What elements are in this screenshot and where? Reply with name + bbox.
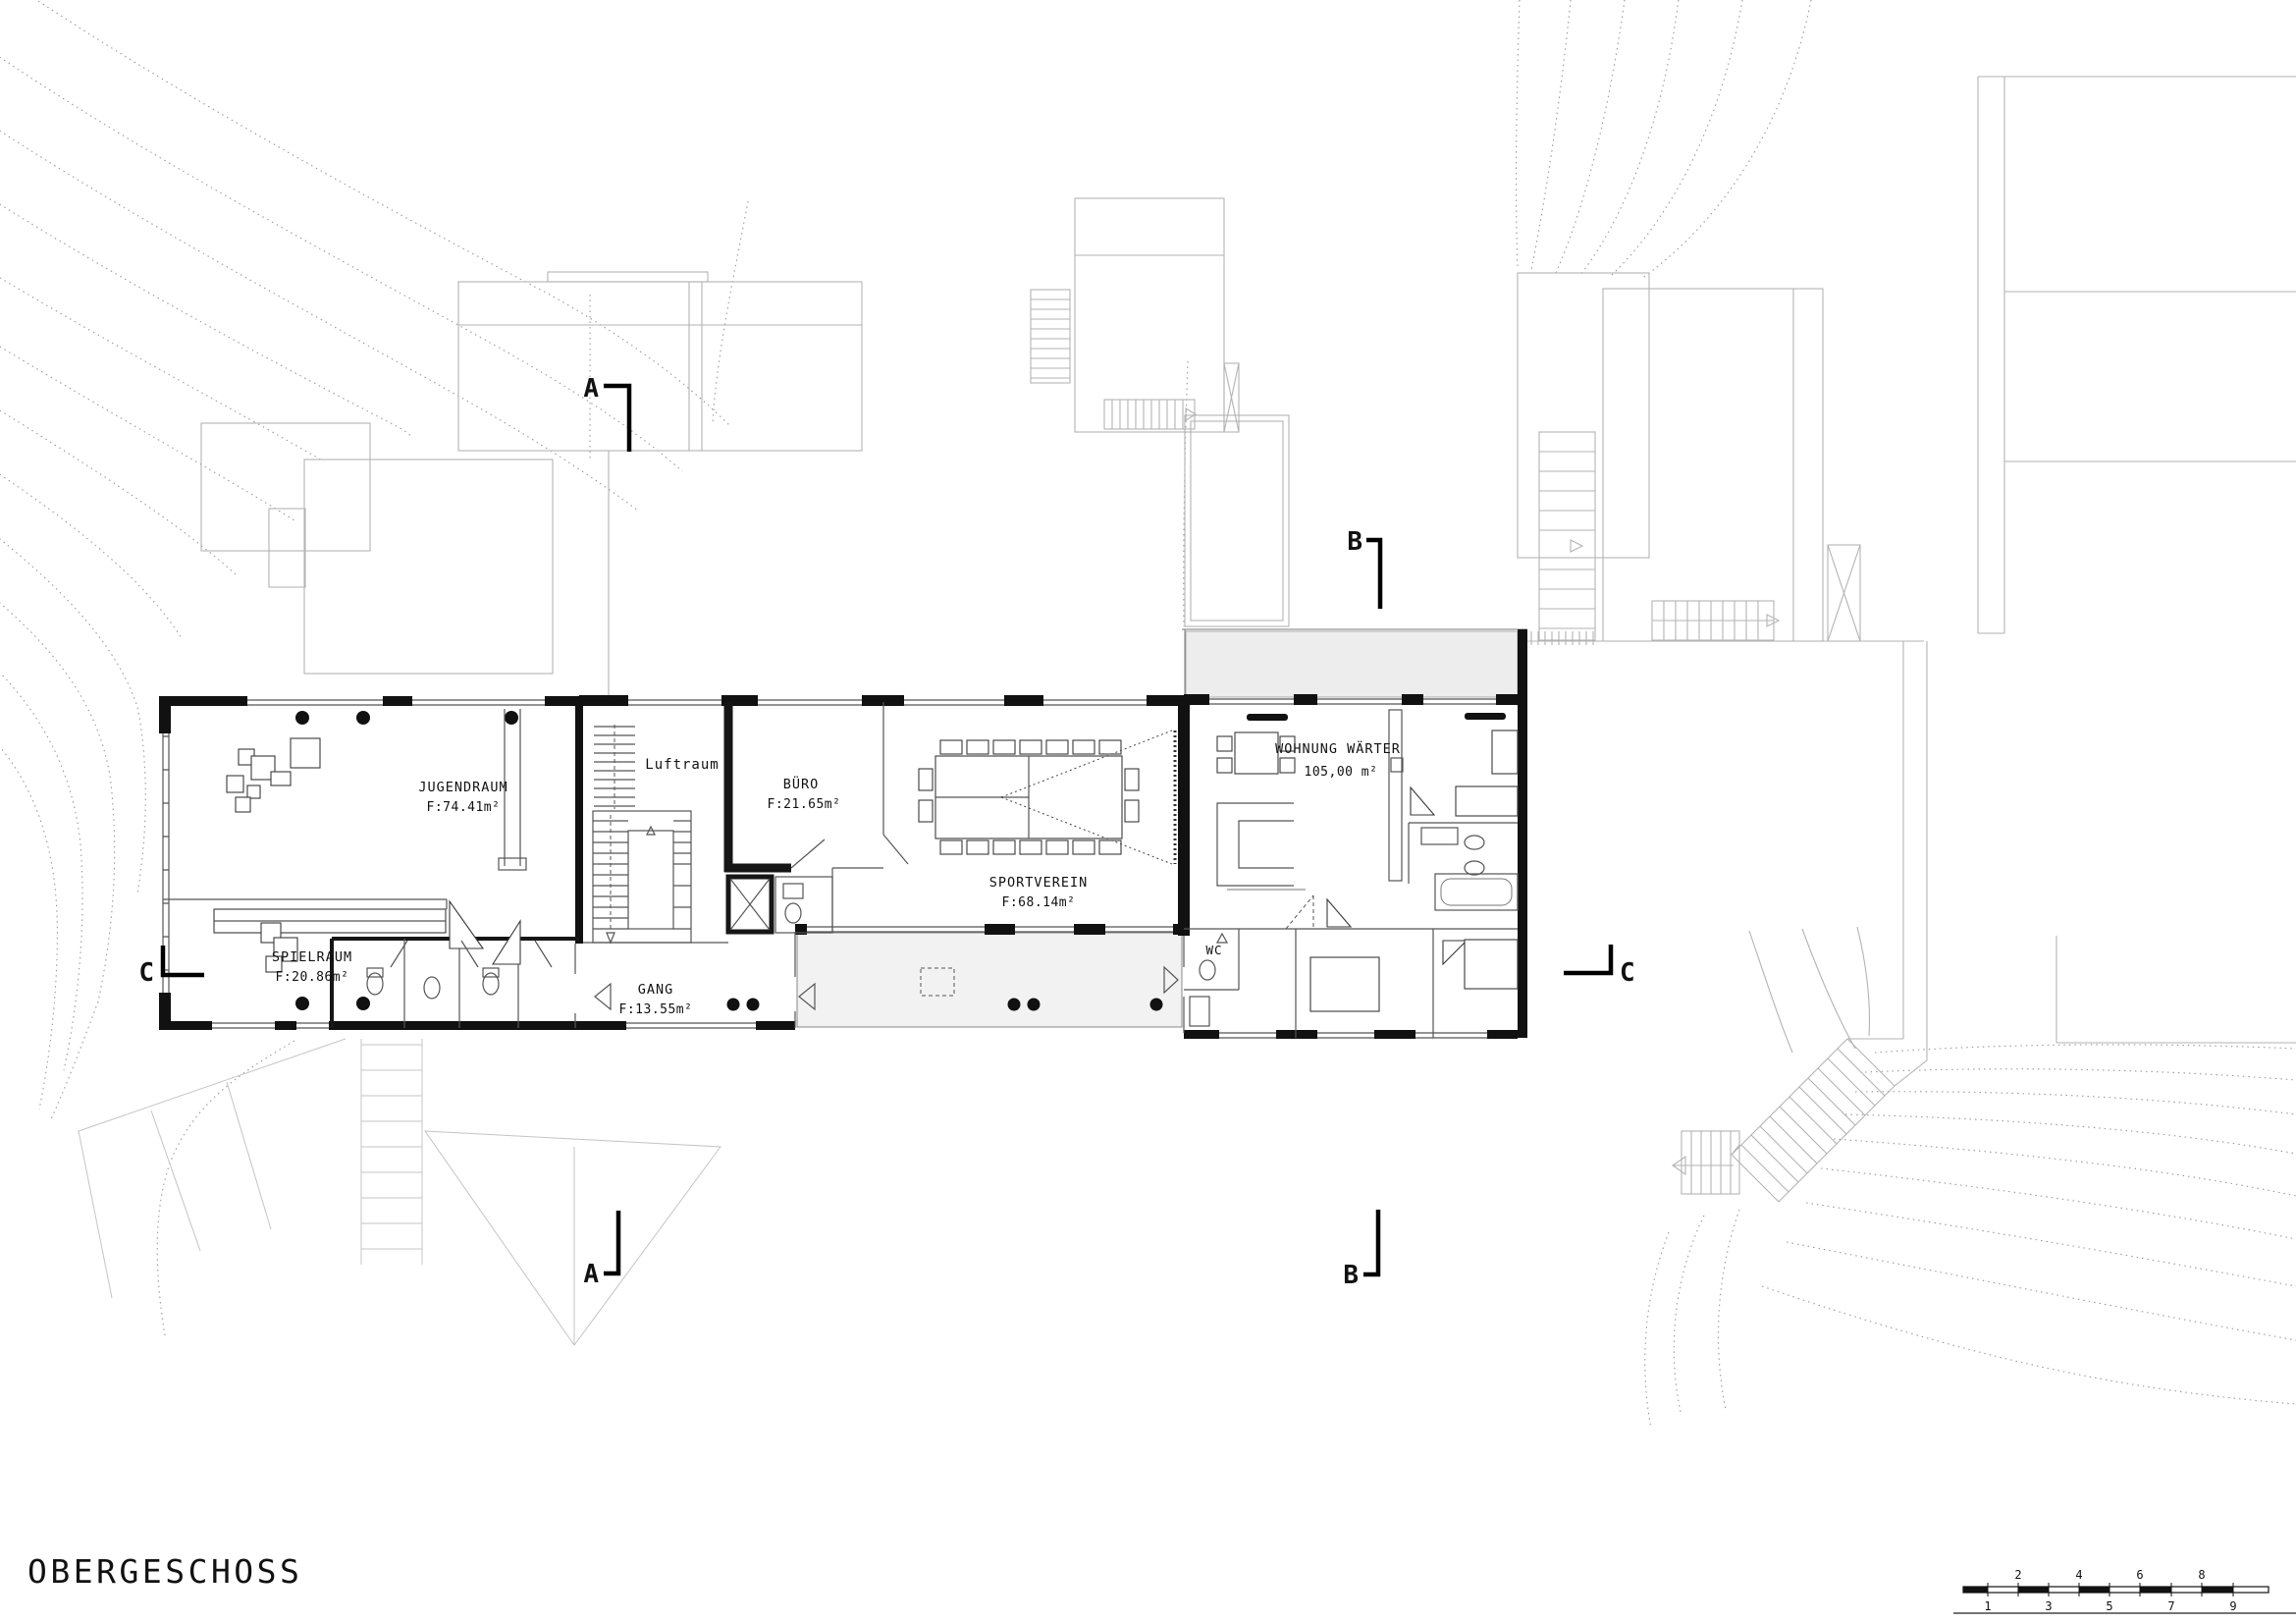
jugendraum-furniture-shape xyxy=(236,797,250,812)
wall-piers-shape xyxy=(329,1021,579,1030)
jugendraum-furniture-shape xyxy=(291,738,320,768)
columns-shape xyxy=(1150,999,1163,1011)
gang-door-arrow xyxy=(595,984,611,1009)
doors-shape xyxy=(1217,934,1227,943)
conference-table-shape xyxy=(1046,740,1068,754)
contour-lines-bottomright-shape xyxy=(1875,1045,2296,1053)
contour-lines-bottomleft xyxy=(51,1001,294,1335)
facade-windows-shape xyxy=(1184,699,1518,704)
wohnung-furniture-shape xyxy=(1492,730,1518,774)
section-markers-shape xyxy=(1564,945,1611,973)
wall-piers-shape xyxy=(1184,1030,1219,1039)
exterior-stair-southeast-shape xyxy=(1732,1145,1739,1155)
exterior-ladder-path xyxy=(361,1039,422,1265)
contour-lines-topleft-shape xyxy=(1184,361,1188,626)
wall-piers-shape xyxy=(383,696,412,706)
jugendraum-furniture-shape xyxy=(271,772,291,785)
contour-lines-topleft-shape xyxy=(0,54,682,471)
wohnung-furniture-shape xyxy=(1190,997,1209,1026)
scale-label-4: 4 xyxy=(2075,1568,2082,1582)
wohnung-furniture-shape xyxy=(1310,957,1379,1011)
columns-shape xyxy=(505,711,518,725)
columns-shape xyxy=(747,999,760,1011)
contour-lines-topright-shape xyxy=(1531,0,1571,270)
wall-piers-shape xyxy=(275,1021,296,1030)
contour-lines-bottomright-shape xyxy=(1834,1139,2296,1196)
plan-drawing: A A B B C C JUGENDRAUM F:74.41m² SPIELRA… xyxy=(0,0,2296,1623)
conference-table-shape xyxy=(967,740,988,754)
facade-windows-shape xyxy=(1531,631,1593,645)
facade-windows-shape xyxy=(163,702,169,1028)
scale-bar-shape xyxy=(1963,1587,1988,1593)
drawing-title: OBERGESCHOSS xyxy=(27,1552,302,1591)
adjacent-buildings-northeast-shape xyxy=(1031,290,1070,383)
wc-fixtures xyxy=(367,968,499,999)
scale-label-7: 7 xyxy=(2167,1599,2174,1613)
columns-shape xyxy=(727,999,740,1011)
room-area-wohnung: 105,00 m² xyxy=(1305,765,1378,780)
contour-lines-topright xyxy=(1517,0,1811,279)
wall-piers-shape xyxy=(159,1021,212,1030)
hip-roof-building xyxy=(425,1131,721,1345)
room-label-buero: BÜRO xyxy=(783,775,820,792)
jugendraum-furniture-shape xyxy=(227,776,243,792)
scale-bar-shape xyxy=(2079,1587,2109,1593)
scale-label-1: 1 xyxy=(1984,1599,1991,1613)
room-label-wc: WC xyxy=(1205,943,1222,957)
columns-shape xyxy=(295,997,309,1010)
scale-label-9: 9 xyxy=(2229,1599,2236,1613)
adjacent-buildings-east-shape xyxy=(1518,273,1649,558)
conference-table-shape xyxy=(1099,840,1121,854)
wall-piers-shape xyxy=(579,695,628,706)
wall-piers-shape xyxy=(1074,924,1105,935)
contour-lines-topleft-shape xyxy=(0,535,145,893)
contour-lines-topleft-shape xyxy=(0,407,236,574)
room-label-luftraum: Luftraum xyxy=(645,757,719,773)
contour-lines-topleft-shape xyxy=(0,668,82,1070)
scale-bar-shape xyxy=(2140,1587,2171,1593)
site-boundaries-shape xyxy=(151,1110,200,1251)
section-markers-shape xyxy=(604,1211,618,1273)
conference-table-shape xyxy=(1020,840,1041,854)
adjacent-buildings-east-shape xyxy=(1603,289,1823,641)
contour-lines-bottomright-shape xyxy=(1674,1216,1704,1412)
wohnung-furniture-shape xyxy=(1456,786,1518,816)
doors-shape xyxy=(1411,787,1434,815)
contour-lines-bottomright-shape xyxy=(1845,1114,2296,1154)
adjacent-buildings-east-shape xyxy=(1828,545,1860,641)
section-marker-c-left: C xyxy=(138,958,154,988)
columns-shape xyxy=(356,997,370,1010)
wall-piers-shape xyxy=(756,1021,795,1030)
contour-lines-bottomright xyxy=(1645,1045,2296,1429)
wall-piers-shape xyxy=(579,1021,626,1030)
conference-table-shape xyxy=(1125,800,1139,822)
scale-label-2: 2 xyxy=(2014,1568,2021,1582)
section-marker-a-top: A xyxy=(583,374,599,404)
room-label-jugendraum: JUGENDRAUM xyxy=(418,780,507,795)
contour-lines-topright-shape xyxy=(1641,0,1811,279)
contour-lines-topright-shape xyxy=(1517,0,1520,267)
interior-walls-shape xyxy=(783,884,803,898)
section-marker-a-bottom: A xyxy=(583,1260,599,1289)
conference-table-shape xyxy=(1073,840,1095,854)
doors-shape xyxy=(1327,899,1351,927)
main-stair-shape xyxy=(628,831,673,929)
scale-label-6: 6 xyxy=(2136,1568,2143,1582)
contour-lines-bottomright-shape xyxy=(1821,1168,2296,1239)
interior-walls-shape xyxy=(163,899,447,909)
conference-table-shape xyxy=(1046,840,1068,854)
facade-windows-shape xyxy=(1184,1033,1518,1038)
interior-walls-shape xyxy=(785,903,801,923)
stairhall-west-wall xyxy=(575,700,583,944)
wohnung-furniture-shape xyxy=(1441,879,1512,905)
wohnung-furniture-shape xyxy=(1247,714,1288,721)
adjacent-buildings-north-shape xyxy=(458,282,862,451)
wohnung-furniture-shape xyxy=(1217,758,1232,773)
adjacent-buildings-northeast-shape xyxy=(1104,400,1195,429)
interior-walls-shape xyxy=(1409,823,1518,884)
contour-lines-topleft-shape xyxy=(0,599,115,1001)
contour-lines-bottomright-shape xyxy=(1645,1232,1669,1429)
scale-label-5: 5 xyxy=(2106,1599,2112,1613)
contour-lines-bottomleft-shape xyxy=(51,1001,98,1119)
scale-bar: 1 2 3 4 5 6 7 8 9 xyxy=(1953,1568,2296,1613)
columns-shape xyxy=(356,711,370,725)
exterior-stair-southeast xyxy=(1673,927,1927,1202)
wohnung-furniture-shape xyxy=(1465,940,1518,989)
adjacent-buildings-northeast-shape xyxy=(1075,198,1224,432)
section-marker-b-top: B xyxy=(1347,527,1362,557)
exterior-ladder-path-shape xyxy=(361,1045,422,1249)
conference-table-shape xyxy=(1020,740,1041,754)
section-marker-b-bottom: B xyxy=(1343,1261,1359,1290)
hip-roof-building-shape xyxy=(425,1131,721,1345)
contour-lines-topright-shape xyxy=(1610,0,1742,277)
contour-lines-topright-shape xyxy=(1580,0,1679,275)
doors-shape xyxy=(450,901,483,948)
conference-table-shape xyxy=(1099,740,1121,754)
wall-piers-shape xyxy=(1496,694,1518,705)
wall-piers-shape xyxy=(1402,694,1423,705)
interior-walls-shape xyxy=(832,868,883,931)
adjacent-buildings-northeast-shape xyxy=(1191,421,1283,621)
conference-table-shape xyxy=(993,740,1015,754)
columns-shape xyxy=(1008,999,1021,1011)
scale-label-8: 8 xyxy=(2198,1568,2205,1582)
room-area-spielraum: F:20.86m² xyxy=(276,970,349,985)
wc-fixtures-shape xyxy=(367,973,383,995)
wall-piers-shape xyxy=(985,924,1015,935)
wohnung-furniture-shape xyxy=(1465,713,1506,720)
conference-table-shape xyxy=(940,740,962,754)
contour-lines-topleft-shape xyxy=(29,0,731,427)
scale-bar-shape xyxy=(2202,1587,2233,1593)
adjacent-buildings-east-shape xyxy=(1571,540,1582,552)
sportverein-east-wall xyxy=(1178,698,1190,936)
exterior-stair-southeast-shape xyxy=(1749,931,1792,1053)
section-markers-shape xyxy=(1366,540,1380,609)
doors-shape xyxy=(1286,895,1313,929)
interior-walls-shape xyxy=(883,835,908,864)
section-markers-shape xyxy=(1363,1210,1378,1274)
scale-label-3: 3 xyxy=(2045,1599,2052,1613)
adjacent-buildings-north-shape xyxy=(304,460,553,674)
contour-lines-topleft-shape xyxy=(0,471,182,638)
adjacent-buildings-east-shape xyxy=(1978,77,2296,633)
room-area-gang: F:13.55m² xyxy=(619,1002,693,1017)
contour-lines-topleft-shape xyxy=(0,201,412,437)
room-area-buero: F:21.65m² xyxy=(768,797,841,812)
conference-table-shape xyxy=(967,840,988,854)
interior-walls-shape xyxy=(1389,710,1402,881)
site-boundaries-shape xyxy=(227,1082,271,1229)
conference-table-shape xyxy=(919,769,933,790)
adjacent-buildings-north-shape xyxy=(201,423,370,551)
contour-lines-bottomright-shape xyxy=(1855,1092,2296,1114)
adjacent-buildings-east-shape xyxy=(1539,452,1595,628)
wc-fixtures-shape xyxy=(424,977,440,999)
contour-lines-bottomright-shape xyxy=(1718,1210,1739,1410)
section-marker-c-right: C xyxy=(1620,958,1635,988)
conference-table xyxy=(919,730,1175,864)
wohnung-furniture-shape xyxy=(1235,732,1278,774)
floor-plan-sheet: A A B B C C JUGENDRAUM F:74.41m² SPIELRA… xyxy=(0,0,2296,1623)
wall-piers-shape xyxy=(159,696,247,706)
south-terrace xyxy=(797,933,1182,1027)
elevator-x xyxy=(730,879,770,930)
wall-piers-shape xyxy=(1276,1030,1317,1039)
wall-piers-shape xyxy=(1374,1030,1415,1039)
site-boundaries-shape xyxy=(79,1039,346,1298)
exterior-stair-southeast-shape xyxy=(1691,1131,1731,1194)
adjacent-buildings-northeast-shape xyxy=(1031,299,1070,378)
facade-windows-shape xyxy=(163,736,169,970)
wall-piers-shape xyxy=(1004,695,1043,706)
adjacent-buildings-northeast-shape xyxy=(1112,400,1183,429)
wohnung-furniture-shape xyxy=(1421,828,1458,844)
wall-piers-shape xyxy=(1294,694,1317,705)
conference-table-shape xyxy=(1125,769,1139,790)
plan-fills xyxy=(797,631,1518,1027)
jugendraum-furniture-shape xyxy=(247,785,260,798)
columns-shape xyxy=(295,711,309,725)
contour-lines-bottomright-shape xyxy=(1865,1069,2296,1080)
adjacent-buildings-north-shape xyxy=(548,272,708,282)
exterior-ladder-path-shape xyxy=(361,1039,422,1265)
exterior-stair-southeast-shape xyxy=(1857,927,1870,1036)
room-label-spielraum: SPIELRAUM xyxy=(272,949,352,965)
site-boundaries xyxy=(79,1039,346,1298)
contour-lines-topleft-shape xyxy=(713,201,748,424)
jugendraum-furniture-shape xyxy=(499,858,526,870)
exterior-stair-southeast-shape xyxy=(1802,929,1855,1049)
sofa xyxy=(1217,803,1294,886)
room-area-jugendraum: F:74.41m² xyxy=(427,800,501,815)
wohnung-furniture-shape xyxy=(1465,861,1484,875)
contour-lines-topright-shape xyxy=(1556,0,1625,273)
roof-terrace-band xyxy=(1186,631,1518,697)
contour-lines-bottomright-shape xyxy=(1762,1286,2296,1404)
east-heavy-wall xyxy=(1518,629,1527,1038)
doors-shape xyxy=(1443,941,1467,964)
contour-lines-bottomright-shape xyxy=(1806,1203,2296,1286)
adjacent-buildings-north xyxy=(201,272,862,699)
conference-table-shape xyxy=(919,800,933,822)
room-label-gang: GANG xyxy=(638,982,674,998)
wohnung-furniture-shape xyxy=(1200,960,1215,980)
main-stair-shape xyxy=(673,821,691,929)
doors-shape xyxy=(493,921,520,964)
room-area-sportverein: F:68.14m² xyxy=(1002,895,1076,910)
exterior-stair-southeast-shape xyxy=(1732,1039,1895,1202)
adjacent-buildings-northeast xyxy=(1031,198,1289,626)
wall-piers-shape xyxy=(159,698,171,733)
contour-lines-topleft-shape xyxy=(0,275,324,461)
conference-table-shape xyxy=(1073,740,1095,754)
adjacent-buildings-east-shape xyxy=(1903,641,1927,1060)
wohnung-furniture-shape xyxy=(1280,758,1295,773)
wohnung-furniture-shape xyxy=(1391,758,1403,772)
wohnung-furniture-shape xyxy=(1465,836,1484,849)
room-label-sportverein: SPORTVEREIN xyxy=(989,875,1088,891)
columns-shape xyxy=(1028,999,1041,1011)
wall-piers-shape xyxy=(1487,1030,1518,1039)
wohnung-furniture-shape xyxy=(1217,736,1232,751)
wc-fixtures-shape xyxy=(483,973,499,995)
contour-lines-topleft-shape xyxy=(0,741,57,1109)
adjacent-buildings-north-shape xyxy=(689,282,702,451)
stair-arrow xyxy=(607,933,614,943)
contour-lines-topleft-shape xyxy=(0,128,638,511)
interior-walls-shape xyxy=(791,839,825,868)
contour-lines-topleft-shape xyxy=(0,344,294,520)
adjacent-buildings-east-shape xyxy=(2056,936,2296,1043)
section-markers-shape xyxy=(604,386,629,452)
adjacent-buildings-east xyxy=(1518,77,2296,1060)
interior-walls-shape xyxy=(1184,929,1239,990)
room-label-wohnung: WOHNUNG WÄRTER xyxy=(1275,739,1401,757)
conference-table-shape xyxy=(993,840,1015,854)
adjacent-buildings-north-shape xyxy=(269,509,305,587)
contour-lines-bottomright-shape xyxy=(1787,1242,2296,1340)
scale-bar-shape xyxy=(2018,1587,2049,1593)
adjacent-buildings-northeast-shape xyxy=(1185,415,1289,626)
conference-table-shape xyxy=(940,840,962,854)
